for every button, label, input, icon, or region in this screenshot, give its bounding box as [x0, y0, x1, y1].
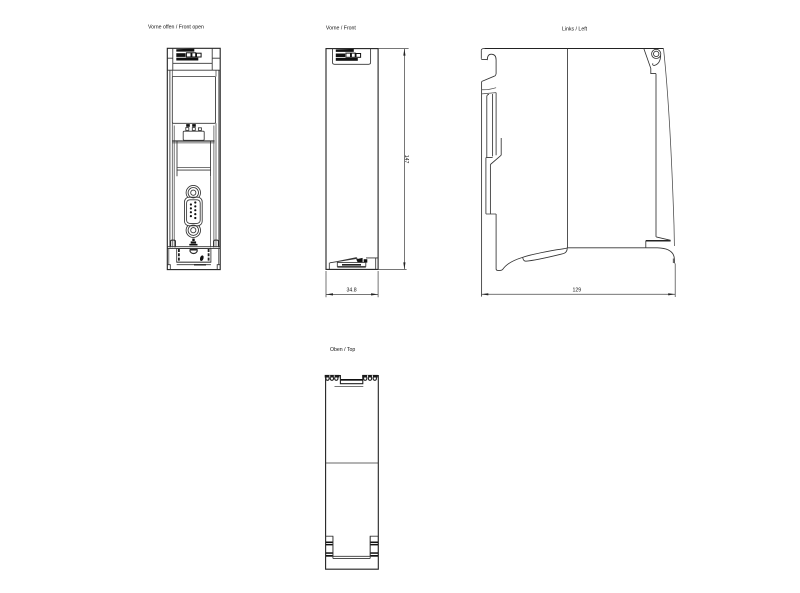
svg-text:147: 147 [403, 155, 409, 164]
svg-text:129: 129 [573, 288, 582, 294]
svg-text:Oben / Top: Oben / Top [330, 347, 355, 353]
svg-text:Vorne offen / Front open: Vorne offen / Front open [148, 25, 204, 31]
svg-text:Links / Left: Links / Left [562, 27, 588, 33]
svg-text:Vorne / Front: Vorne / Front [326, 26, 357, 32]
svg-text:34.8: 34.8 [347, 287, 357, 293]
